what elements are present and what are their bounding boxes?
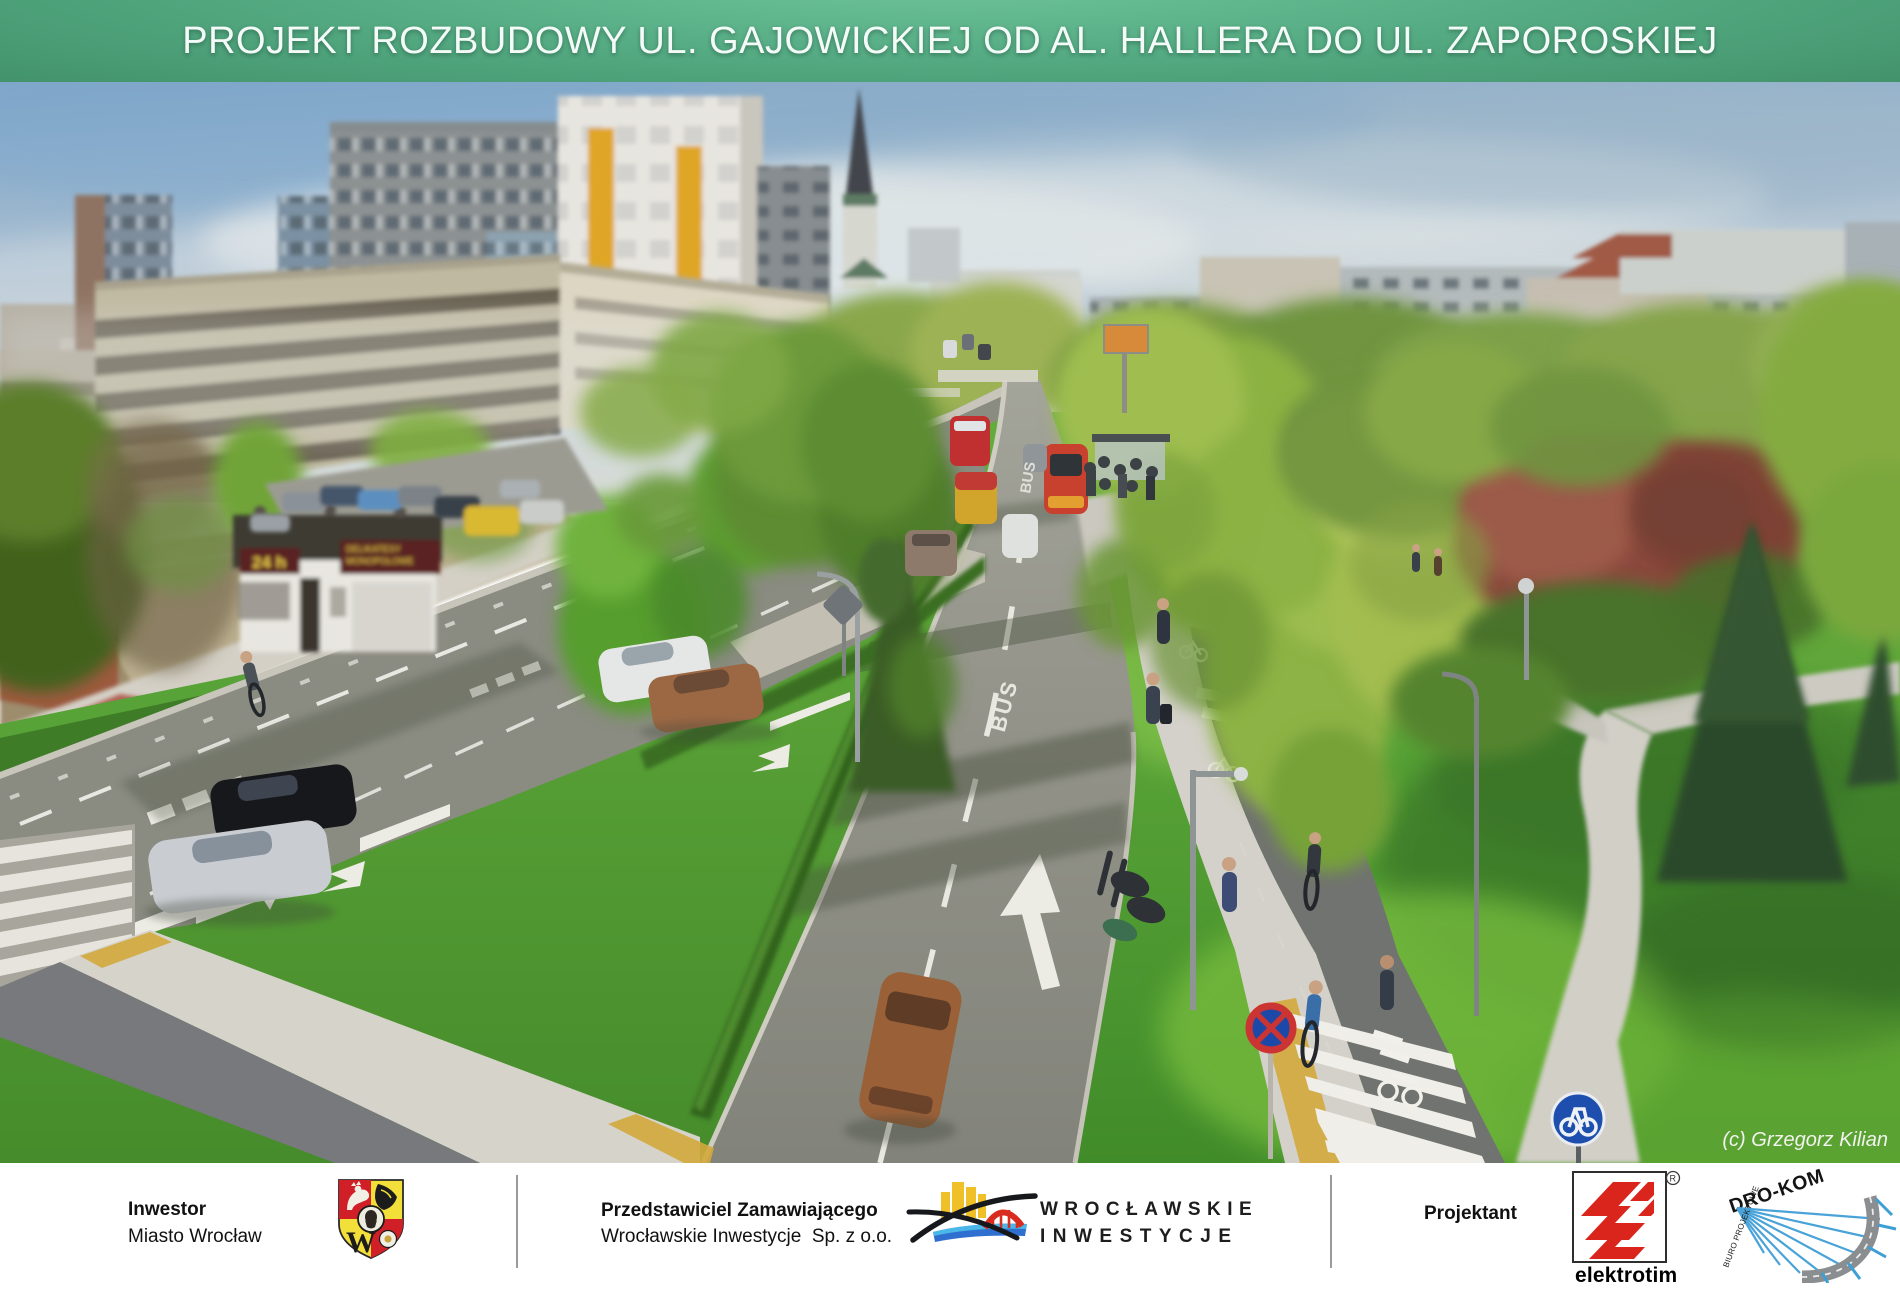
svg-text:R: R	[1670, 1174, 1677, 1184]
svg-text:(c) Grzegorz Kilian: (c) Grzegorz Kilian	[1722, 1129, 1888, 1151]
svg-text:MONOPOLOWE: MONOPOLOWE	[346, 556, 414, 566]
svg-text:elektrotim: elektrotim	[1575, 1264, 1677, 1287]
svg-text:24 h: 24 h	[252, 553, 286, 572]
svg-text:DELIKATESY: DELIKATESY	[346, 544, 401, 554]
